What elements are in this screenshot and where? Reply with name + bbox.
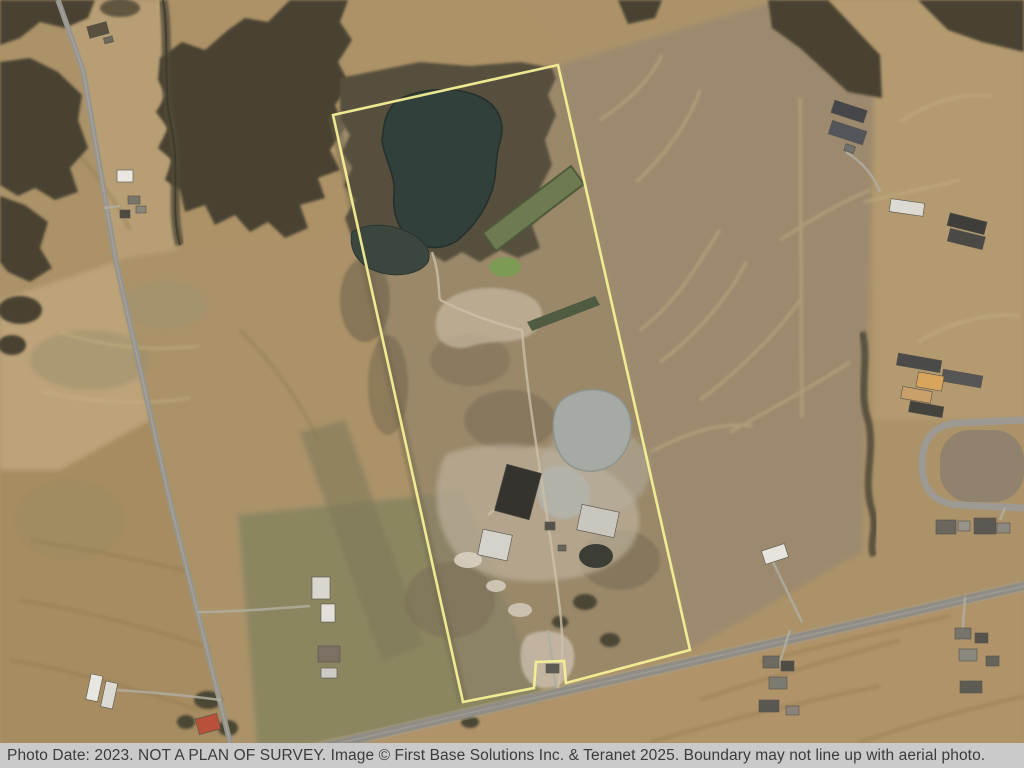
dark-round-pond bbox=[579, 544, 613, 568]
aerial-map-view[interactable]: Photo Date: 2023. NOT A PLAN OF SURVEY. … bbox=[0, 0, 1024, 768]
aerial-photo bbox=[0, 0, 1024, 768]
gray-sludge-pond bbox=[553, 390, 631, 471]
caption-text: Photo Date: 2023. NOT A PLAN OF SURVEY. … bbox=[7, 747, 985, 765]
caption-bar: Photo Date: 2023. NOT A PLAN OF SURVEY. … bbox=[0, 743, 1024, 768]
small-green-pond bbox=[489, 257, 521, 277]
